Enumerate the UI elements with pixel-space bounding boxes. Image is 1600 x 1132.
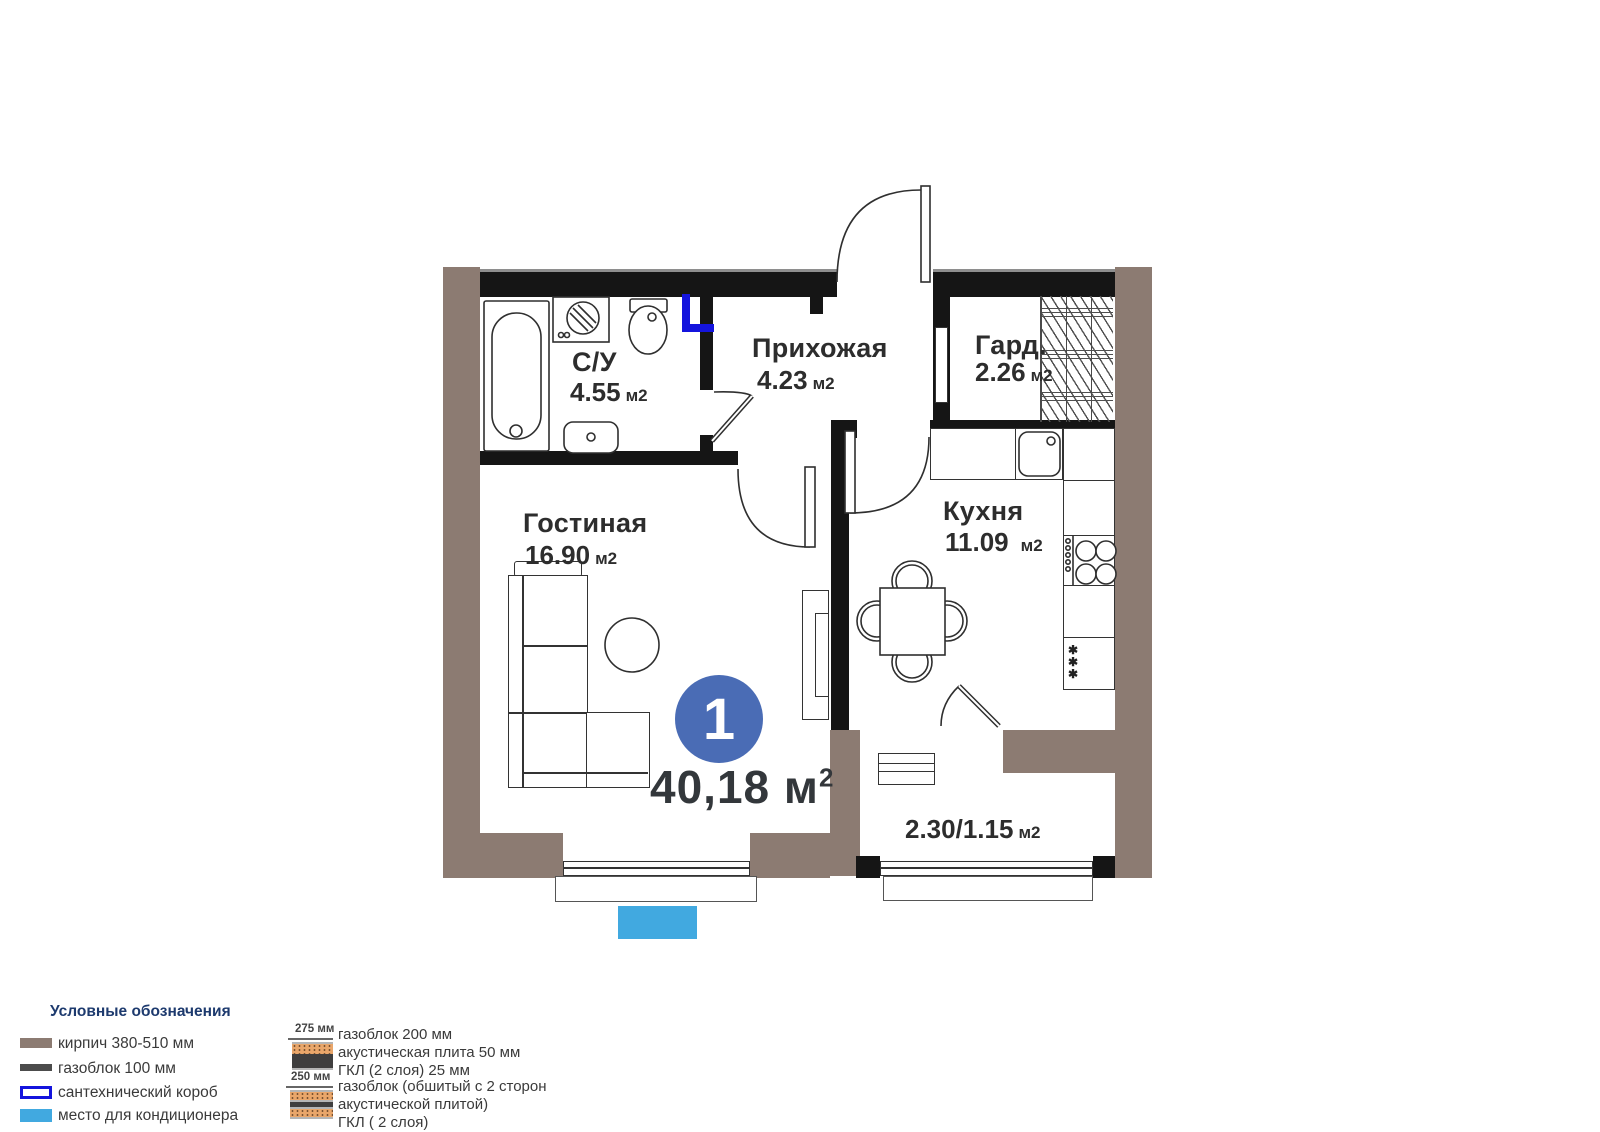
area-value: 16.90 <box>525 540 590 570</box>
acoustic-layer <box>290 1092 333 1100</box>
legend-label-brick: кирпич 380-510 мм <box>58 1035 194 1053</box>
legend-title: Условные обозначения <box>50 1003 231 1021</box>
room-area-wardrobe: 2.26м2 <box>975 357 1053 388</box>
wall-section-2-text: газоблок (обшитый с 2 сторон акустическо… <box>338 1078 547 1132</box>
bathtub-drain <box>510 425 522 437</box>
room-label-living: Гостиная <box>523 508 647 539</box>
legend-swatch-ac <box>20 1109 52 1122</box>
legend-swatch-gasblock <box>20 1064 52 1071</box>
stove-burner <box>1096 564 1116 584</box>
total-area-value: 40,18 <box>650 761 770 813</box>
room-label-bathroom: С/У <box>572 347 617 378</box>
acoustic-layer <box>292 1044 333 1054</box>
kitchen-door-leaf <box>845 431 855 513</box>
total-area-unit: м <box>784 761 819 813</box>
living-door-leaf <box>805 467 815 547</box>
bathroom-door-arc <box>714 392 752 396</box>
entrance-door-arc <box>837 190 921 282</box>
plan-drawing-layer <box>0 0 1600 1131</box>
wall-section-1-size: 275 мм <box>295 1023 334 1035</box>
legend-label-plumbing: сантехнический короб <box>58 1084 218 1102</box>
gasblock-layer <box>292 1054 333 1068</box>
living-door-arc <box>738 469 810 547</box>
wall-section-2-size: 250 мм <box>291 1071 330 1083</box>
wall-section-line: газоблок 200 мм <box>338 1026 520 1044</box>
gkl-layer <box>292 1068 333 1070</box>
area-unit: м2 <box>595 549 617 568</box>
area-unit: м2 <box>1021 536 1043 555</box>
balcony-door-arc <box>941 686 959 726</box>
room-label-kitchen: Кухня <box>943 496 1023 527</box>
legend-label-gasblock: газоблок 100 мм <box>58 1060 176 1078</box>
legend-swatch-plumbing <box>20 1086 52 1099</box>
stove-burner <box>1076 541 1096 561</box>
wall-section-line: ГКЛ ( 2 слоя) <box>338 1114 547 1132</box>
unit-count-badge: 1 <box>675 675 763 763</box>
wall-section-1-text: газоблок 200 мм акустическая плита 50 мм… <box>338 1026 520 1080</box>
area-unit: м2 <box>1031 366 1053 385</box>
total-area: 40,18 м2 <box>650 760 834 814</box>
bathtub-inner <box>492 313 541 439</box>
wall-section-2-rule <box>286 1086 333 1088</box>
toilet-bowl <box>629 306 667 354</box>
legend-label-ac: место для кондиционера <box>58 1107 238 1125</box>
gkl-layer <box>290 1117 333 1119</box>
wall-section-2-swatch <box>290 1090 333 1119</box>
legend-swatch-brick <box>20 1038 52 1048</box>
kitchen-table <box>880 588 945 655</box>
total-area-sup: 2 <box>819 763 834 793</box>
room-label-hallway: Прихожая <box>752 333 888 364</box>
room-area-balcony: 2.30/1.15м2 <box>905 814 1040 845</box>
entrance-door-leaf <box>921 186 930 282</box>
area-value: 11.09 <box>945 527 1009 557</box>
room-area-bathroom: 4.55м2 <box>570 377 648 408</box>
area-value: 4.23 <box>757 365 808 395</box>
area-value: 2.30/1.15 <box>905 814 1013 844</box>
wall-section-1-swatch <box>292 1042 333 1070</box>
stove-burner <box>1076 564 1096 584</box>
room-area-living: 16.90м2 <box>525 540 617 571</box>
area-value: 2.26 <box>975 357 1026 387</box>
acoustic-layer <box>290 1109 333 1117</box>
stove-burner <box>1096 541 1116 561</box>
wall-section-line: акустической плитой) <box>338 1096 547 1114</box>
area-value: 4.55 <box>570 377 621 407</box>
side-table <box>605 618 659 672</box>
area-unit: м2 <box>813 374 835 393</box>
room-area-hallway: 4.23м2 <box>757 365 835 396</box>
area-unit: м2 <box>626 386 648 405</box>
room-area-kitchen: 11.09м2 <box>945 527 1043 558</box>
wall-section-1-rule <box>288 1038 333 1040</box>
wall-section-line: газоблок (обшитый с 2 сторон <box>338 1078 547 1096</box>
wall-section-line: акустическая плита 50 мм <box>338 1044 520 1062</box>
area-unit: м2 <box>1018 823 1040 842</box>
kitchen-door-arc <box>850 437 929 513</box>
floorplan-page: { "plan": { "badge": "1", "total": {"val… <box>0 0 1600 1131</box>
